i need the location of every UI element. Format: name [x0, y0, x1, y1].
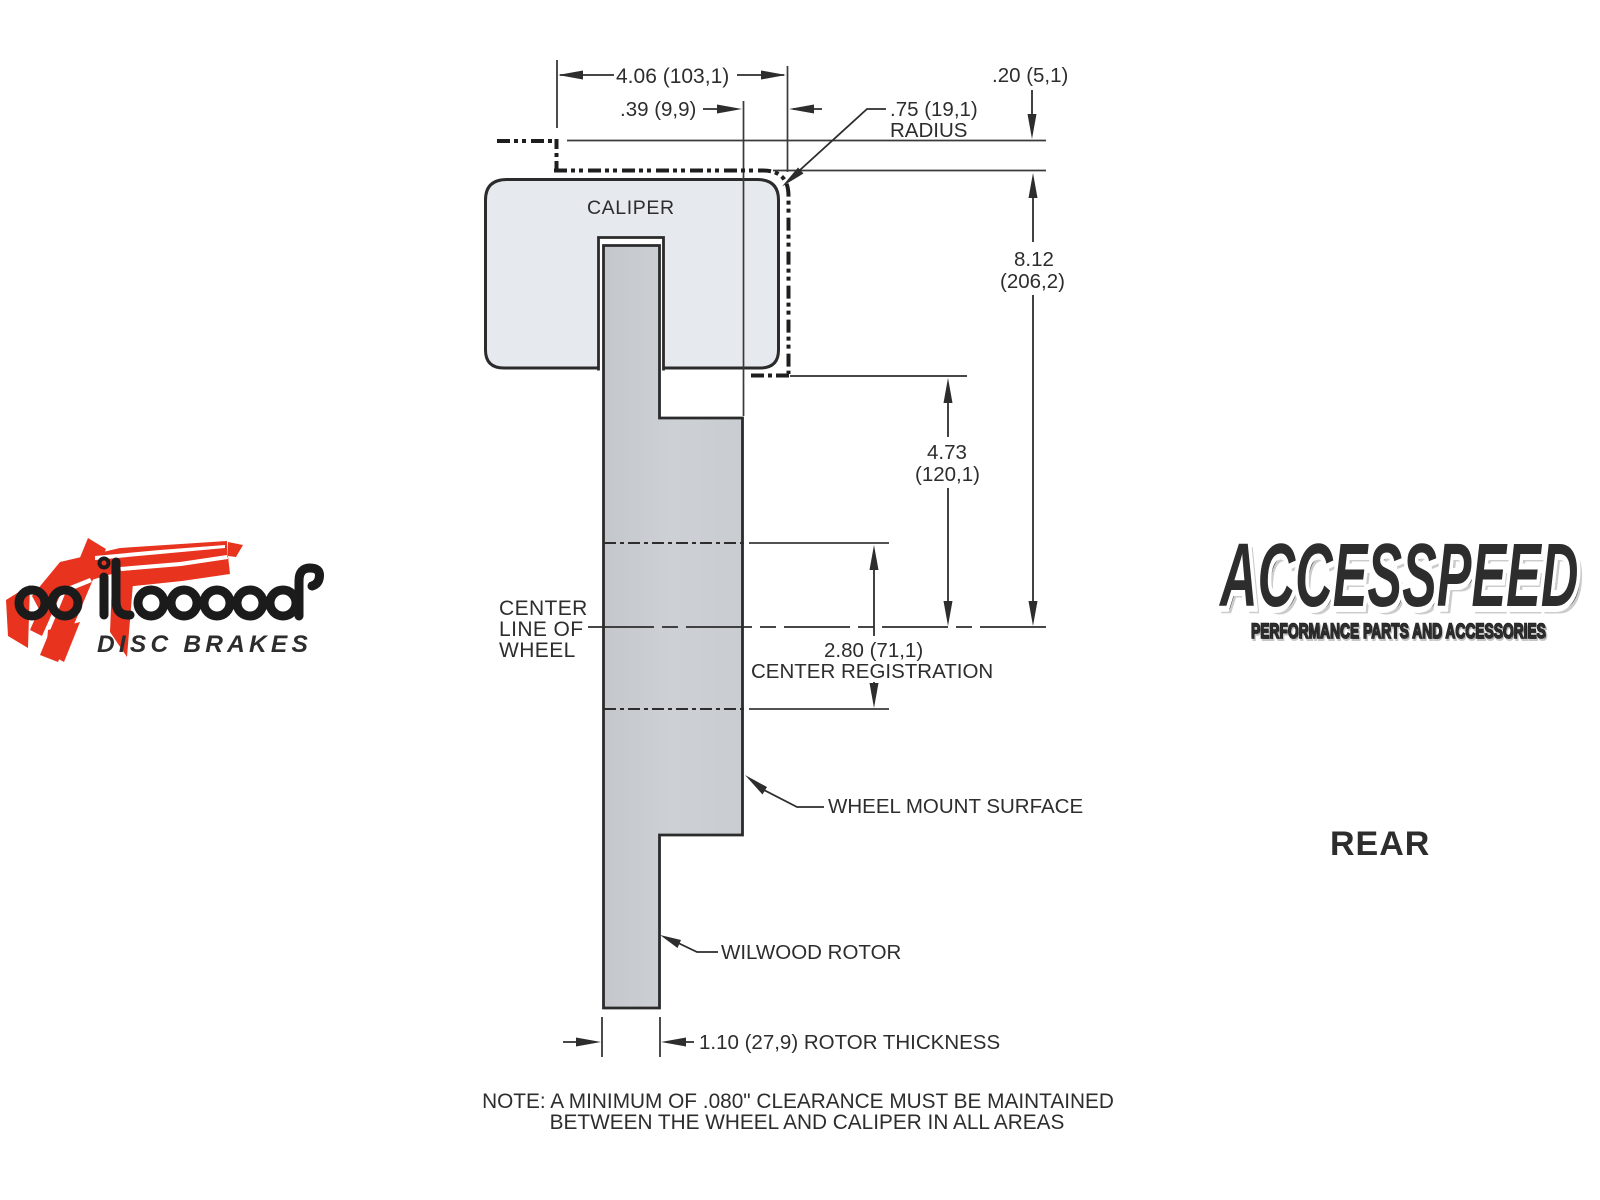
svg-text:BETWEEN THE WHEEL AND CALIPER: BETWEEN THE WHEEL AND CALIPER IN ALL ARE…: [550, 1111, 1065, 1134]
svg-text:DISC BRAKES: DISC BRAKES: [97, 631, 312, 658]
svg-text:CENTER REGISTRATION: CENTER REGISTRATION: [751, 660, 993, 683]
svg-text:2.80 (71,1): 2.80 (71,1): [824, 639, 923, 662]
svg-text:NOTE: A MINIMUM OF .080" CLEAR: NOTE: A MINIMUM OF .080" CLEARANCE MUST …: [482, 1090, 1114, 1113]
svg-text:LINE OF: LINE OF: [499, 618, 583, 641]
svg-text:4.06 (103,1): 4.06 (103,1): [616, 65, 729, 88]
svg-text:.75 (19,1): .75 (19,1): [890, 98, 978, 121]
svg-text:RADIUS: RADIUS: [890, 119, 967, 142]
svg-text:.20 (5,1): .20 (5,1): [992, 64, 1068, 87]
svg-text:(120,1): (120,1): [915, 463, 980, 486]
svg-text:8.12: 8.12: [1014, 248, 1054, 271]
svg-text:REAR: REAR: [1330, 825, 1430, 863]
svg-text:ACCESSPEED: ACCESSPEED: [1219, 524, 1579, 626]
svg-text:CENTER: CENTER: [499, 597, 588, 620]
svg-text:WHEEL MOUNT SURFACE: WHEEL MOUNT SURFACE: [828, 795, 1083, 818]
svg-text:PERFORMANCE PARTS AND ACCESSOR: PERFORMANCE PARTS AND ACCESSORIES: [1251, 619, 1546, 643]
svg-text:WHEEL: WHEEL: [499, 639, 576, 662]
svg-text:1.10 (27,9) ROTOR THICKNESS: 1.10 (27,9) ROTOR THICKNESS: [699, 1031, 1000, 1054]
svg-text:WILWOOD ROTOR: WILWOOD ROTOR: [721, 941, 901, 964]
svg-text:.39 (9,9): .39 (9,9): [620, 98, 696, 121]
svg-text:(206,2): (206,2): [1000, 270, 1065, 293]
svg-text:4.73: 4.73: [927, 441, 967, 464]
svg-text:CALIPER: CALIPER: [587, 197, 675, 219]
